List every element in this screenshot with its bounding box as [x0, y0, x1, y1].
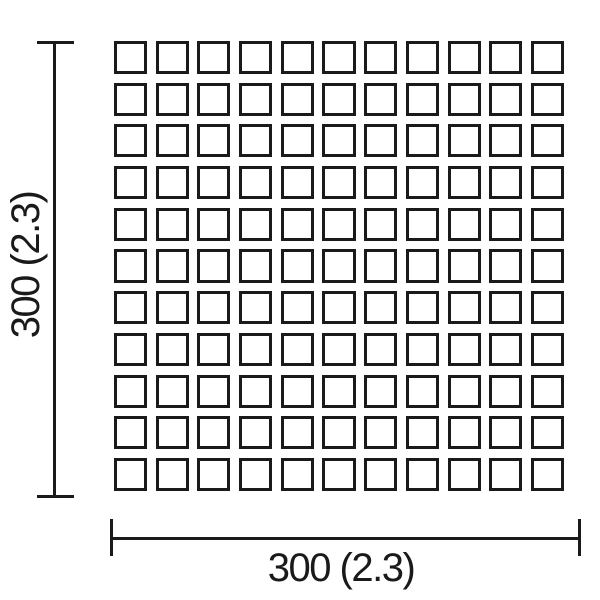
tile-cell [364, 83, 397, 116]
tile-cell [197, 83, 230, 116]
tile-cell [406, 333, 439, 366]
tile-cell [406, 83, 439, 116]
tile-cell [531, 249, 564, 282]
tile-cell [239, 249, 272, 282]
tile-cell [364, 166, 397, 199]
tile-cell [156, 458, 189, 491]
tile-cell [239, 124, 272, 157]
tile-cell [239, 375, 272, 408]
tile-cell [489, 83, 522, 116]
tile-cell [114, 249, 147, 282]
height-dimension-label: 300 (2.3) [6, 192, 46, 339]
tile-cell [197, 291, 230, 324]
tile-cell [448, 208, 481, 241]
tile-cell [197, 124, 230, 157]
tile-cell [239, 458, 272, 491]
tile-cell [489, 416, 522, 449]
tile-cell [531, 166, 564, 199]
tile-grid [114, 41, 564, 491]
tile-cell [114, 83, 147, 116]
tile-cell [531, 83, 564, 116]
tile-cell [322, 83, 355, 116]
tile-cell [281, 124, 314, 157]
tile-cell [448, 375, 481, 408]
tile-cell [448, 291, 481, 324]
tile-cell [114, 208, 147, 241]
tile-cell [406, 458, 439, 491]
tile-cell [322, 375, 355, 408]
tile-cell [281, 249, 314, 282]
horizontal-dimension-cap-right [578, 519, 581, 556]
tile-cell [364, 41, 397, 74]
tile-cell [448, 83, 481, 116]
tile-cell [114, 124, 147, 157]
tile-cell [322, 458, 355, 491]
tile-cell [364, 416, 397, 449]
tile-cell [156, 166, 189, 199]
tile-cell [489, 41, 522, 74]
tile-cell [156, 41, 189, 74]
tile-cell [114, 166, 147, 199]
tile-cell [364, 458, 397, 491]
vertical-dimension-cap-top [37, 41, 74, 44]
tile-cell [156, 83, 189, 116]
tile-cell [448, 458, 481, 491]
vertical-dimension-line [53, 42, 56, 498]
tile-cell [322, 416, 355, 449]
tile-cell [489, 124, 522, 157]
tile-cell [197, 166, 230, 199]
tile-cell [239, 333, 272, 366]
tile-cell [448, 166, 481, 199]
tile-cell [531, 124, 564, 157]
width-dimension-label: 300 (2.3) [268, 548, 415, 588]
tile-cell [364, 249, 397, 282]
tile-cell [489, 333, 522, 366]
tile-cell [114, 416, 147, 449]
tile-cell [406, 291, 439, 324]
tile-cell [322, 41, 355, 74]
tile-cell [156, 333, 189, 366]
tile-cell [531, 416, 564, 449]
tile-cell [281, 375, 314, 408]
tile-cell [406, 416, 439, 449]
tile-cell [364, 124, 397, 157]
tile-cell [406, 166, 439, 199]
tile-cell [281, 83, 314, 116]
tile-cell [114, 291, 147, 324]
tile-cell [281, 291, 314, 324]
tile-cell [531, 291, 564, 324]
tile-cell [197, 208, 230, 241]
tile-cell [489, 458, 522, 491]
tile-cell [156, 375, 189, 408]
tile-sheet-drawing: 300 (2.3) 300 (2.3) [0, 0, 600, 600]
tile-cell [489, 375, 522, 408]
tile-cell [156, 249, 189, 282]
tile-cell [239, 41, 272, 74]
tile-cell [489, 208, 522, 241]
tile-cell [322, 208, 355, 241]
tile-cell [239, 416, 272, 449]
tile-cell [281, 41, 314, 74]
tile-cell [489, 291, 522, 324]
tile-cell [114, 41, 147, 74]
tile-cell [197, 375, 230, 408]
tile-cell [281, 333, 314, 366]
tile-cell [114, 375, 147, 408]
tile-cell [156, 124, 189, 157]
tile-cell [531, 208, 564, 241]
tile-cell [156, 416, 189, 449]
tile-cell [448, 41, 481, 74]
tile-cell [531, 375, 564, 408]
tile-cell [197, 249, 230, 282]
tile-cell [239, 83, 272, 116]
tile-cell [531, 458, 564, 491]
tile-cell [322, 124, 355, 157]
tile-cell [364, 208, 397, 241]
tile-cell [281, 166, 314, 199]
tile-cell [448, 416, 481, 449]
tile-cell [197, 333, 230, 366]
tile-cell [489, 249, 522, 282]
tile-cell [448, 249, 481, 282]
tile-cell [322, 291, 355, 324]
tile-cell [281, 416, 314, 449]
tile-cell [156, 291, 189, 324]
horizontal-dimension-cap-left [110, 519, 113, 556]
tile-cell [281, 208, 314, 241]
tile-cell [448, 124, 481, 157]
tile-cell [406, 124, 439, 157]
tile-cell [406, 249, 439, 282]
tile-cell [531, 333, 564, 366]
tile-cell [239, 208, 272, 241]
vertical-dimension-cap-bottom [37, 495, 74, 498]
tile-cell [239, 291, 272, 324]
tile-cell [364, 291, 397, 324]
tile-cell [239, 166, 272, 199]
tile-cell [197, 416, 230, 449]
tile-cell [322, 166, 355, 199]
tile-cell [114, 458, 147, 491]
tile-cell [364, 375, 397, 408]
tile-cell [448, 333, 481, 366]
tile-cell [114, 333, 147, 366]
tile-cell [156, 208, 189, 241]
tile-cell [406, 375, 439, 408]
tile-cell [364, 333, 397, 366]
tile-cell [531, 41, 564, 74]
tile-cell [197, 41, 230, 74]
tile-cell [406, 41, 439, 74]
tile-cell [197, 458, 230, 491]
horizontal-dimension-line [111, 537, 581, 540]
tile-cell [489, 166, 522, 199]
tile-cell [281, 458, 314, 491]
tile-cell [322, 249, 355, 282]
tile-cell [406, 208, 439, 241]
tile-cell [322, 333, 355, 366]
